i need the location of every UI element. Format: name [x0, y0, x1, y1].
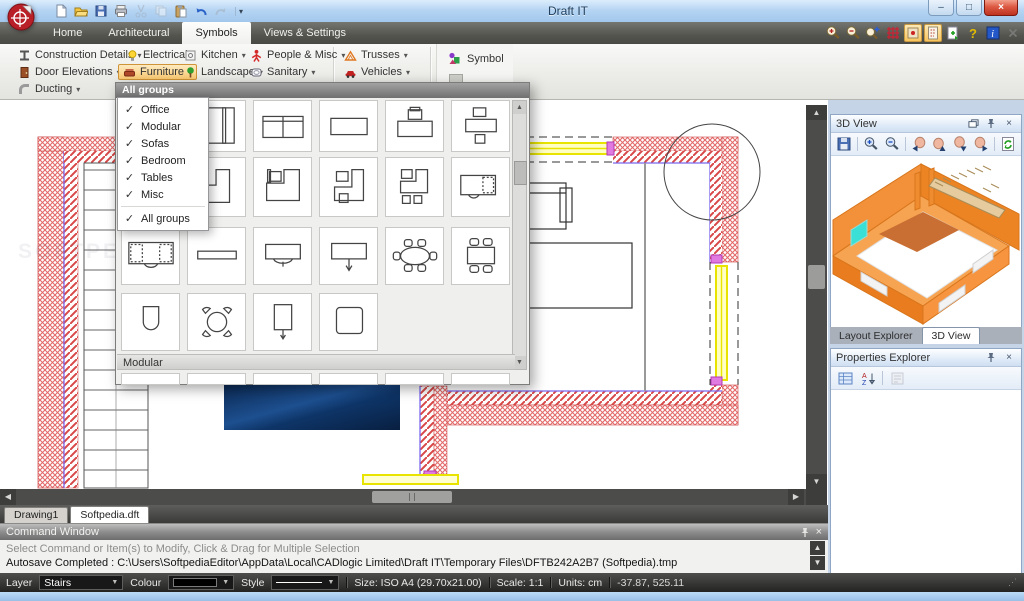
- paper-size: Size: ISO A4 (29.70x21.00): [354, 577, 481, 589]
- checkmark-icon: ✓: [123, 171, 136, 184]
- line-style-preview: [276, 582, 322, 583]
- symbol-button[interactable]: Symbol: [443, 51, 508, 67]
- status-bar: Layer Stairs ▼ Colour ▼ Style ▼ Size: IS…: [0, 573, 1024, 592]
- zoom-out-icon[interactable]: [844, 24, 862, 42]
- doc-tab-drawing1[interactable]: Drawing1: [4, 507, 68, 523]
- properties-panel: Properties Explorer × AZ: [830, 348, 1022, 575]
- menu-item-tables[interactable]: ✓Tables: [118, 169, 208, 186]
- menu-item-misc[interactable]: ✓Misc: [118, 186, 208, 203]
- symbol-desk-dashed-arc[interactable]: [121, 227, 180, 285]
- dock-tabs: Layout Explorer3D View: [830, 327, 1022, 344]
- window-controls: – □ ×: [928, 0, 1018, 16]
- ducting-icon: [18, 83, 31, 96]
- svg-text:i: i: [991, 29, 994, 40]
- command-scrollbar[interactable]: ▲ ▼: [810, 541, 825, 571]
- palette-header: All groups: [116, 83, 529, 98]
- vertical-scroll-thumb[interactable]: [808, 265, 825, 289]
- scroll-left-icon[interactable]: ◀: [0, 489, 16, 505]
- kitchen-icon: [184, 49, 197, 62]
- units: Units: cm: [558, 577, 602, 589]
- minimize-button[interactable]: –: [928, 0, 954, 16]
- symbol-partial[interactable]: [121, 373, 180, 385]
- scroll-down-icon[interactable]: ▼: [810, 556, 825, 570]
- pin-icon[interactable]: [984, 117, 998, 130]
- symbol-l-desk-chair[interactable]: [253, 157, 312, 217]
- menu-item-sofas[interactable]: ✓Sofas: [118, 135, 208, 152]
- snap-grid-icon[interactable]: [884, 24, 902, 42]
- vehicles-button[interactable]: Vehicles▾: [340, 64, 414, 80]
- chevron-down-icon: ▾: [406, 68, 410, 77]
- window-frame-bottom: [0, 592, 1024, 601]
- dock-tab-layout-explorer[interactable]: Layout Explorer: [830, 328, 922, 344]
- sort-az-icon[interactable]: AZ: [858, 369, 878, 387]
- sanitary-icon: [250, 66, 263, 79]
- refresh-3d-icon[interactable]: [999, 135, 1017, 153]
- checkmark-icon: ✓: [123, 120, 136, 133]
- property-pages-icon[interactable]: [887, 369, 907, 387]
- style-label: Style: [241, 577, 264, 589]
- layer-label: Layer: [6, 577, 32, 589]
- scroll-up-icon[interactable]: ▲: [513, 101, 526, 114]
- copy-icon[interactable]: [152, 3, 169, 20]
- door-elevations-icon: [18, 66, 31, 79]
- symbol-toilet[interactable]: [121, 293, 180, 351]
- furniture-icon: [123, 66, 136, 79]
- symbol-table-oval-seats[interactable]: [385, 227, 444, 285]
- scroll-right-icon[interactable]: ▶: [788, 489, 804, 505]
- layer-dropdown[interactable]: Stairs ▼: [39, 575, 123, 590]
- colour-swatch: [173, 578, 217, 587]
- sanitary-button[interactable]: Sanitary▾: [246, 64, 319, 80]
- cursor-coordinates: -37.87, 525.11: [617, 577, 684, 589]
- toolbar-separator: [905, 137, 906, 151]
- tab-symbols[interactable]: Symbols: [182, 22, 250, 44]
- command-prompt-line: Select Command or Item(s) to Modify, Cli…: [6, 543, 822, 555]
- colour-dropdown[interactable]: ▼: [168, 575, 234, 590]
- construction-details-icon: [18, 49, 31, 62]
- svg-text:?: ?: [969, 26, 977, 41]
- trusses-icon: [344, 49, 357, 62]
- palette-section-label: Modular: [117, 354, 515, 370]
- command-window-title: Command Window: [6, 526, 99, 538]
- horizontal-scroll-thumb[interactable]: [372, 491, 452, 503]
- close-icon[interactable]: ×: [816, 526, 822, 538]
- chevron-down-icon: ▾: [311, 68, 315, 77]
- symbol-desk-return-chair[interactable]: [319, 157, 378, 217]
- checkmark-icon: ✓: [123, 154, 136, 167]
- properties-panel-title: Properties Explorer: [836, 352, 930, 364]
- pin-icon[interactable]: [984, 351, 998, 364]
- autosave-message-line: Autosave Completed : C:\Users\SoftpediaE…: [6, 557, 822, 569]
- scroll-up-icon[interactable]: ▲: [806, 105, 827, 120]
- ribbon-tab-row: HomeArchitecturalSymbolsViews & Settings…: [0, 22, 1024, 44]
- pan-left-icon[interactable]: [910, 135, 928, 153]
- toolbar-separator: [994, 137, 995, 151]
- people-misc-button[interactable]: People & Misc▾: [246, 47, 349, 63]
- style-dropdown[interactable]: ▼: [271, 575, 339, 590]
- paste-icon[interactable]: [172, 3, 189, 20]
- door-elevations-button[interactable]: Door Elevations▾: [14, 64, 125, 80]
- draft-it-window: ▾ Draft IT – □ × HomeArchitecturalSymbol…: [0, 0, 1024, 601]
- close-ribbon-icon[interactable]: [1004, 24, 1022, 42]
- chevron-down-icon: ▾: [404, 51, 408, 60]
- ortho-toggle-icon[interactable]: [924, 24, 942, 42]
- ribbon-tabs: HomeArchitecturalSymbolsViews & Settings: [40, 22, 359, 44]
- view3d-panel-title: 3D View: [836, 118, 877, 130]
- svg-text:Z: Z: [862, 380, 867, 386]
- chevron-down-icon: ▾: [76, 85, 80, 94]
- close-button[interactable]: ×: [984, 0, 1018, 16]
- command-log[interactable]: Select Command or Item(s) to Modify, Cli…: [0, 540, 828, 573]
- info-icon[interactable]: i: [984, 24, 1002, 42]
- app-logo-icon[interactable]: [6, 2, 36, 32]
- symbol-partial[interactable]: [319, 373, 378, 385]
- snap-toggle-icon[interactable]: [904, 24, 922, 42]
- zoom-extents-icon[interactable]: [864, 24, 882, 42]
- trusses-button[interactable]: Trusses▾: [340, 47, 412, 63]
- chevron-down-icon: ▼: [327, 579, 334, 586]
- new-icon[interactable]: [52, 3, 69, 20]
- checkmark-icon: ✓: [123, 212, 136, 225]
- symbol-partial[interactable]: [253, 373, 312, 385]
- zoom-in-3d-icon[interactable]: [862, 135, 880, 153]
- scroll-up-icon[interactable]: ▲: [810, 541, 825, 555]
- resize-grip[interactable]: ⋰: [1008, 577, 1018, 588]
- symbol-partial[interactable]: [451, 373, 510, 385]
- symbol-table-arc-chair[interactable]: [253, 227, 312, 285]
- symbol-table-rect[interactable]: [319, 100, 378, 152]
- symbol-desk-chair[interactable]: [385, 100, 444, 152]
- group-filter-menu: ✓Office✓Modular✓Sofas✓Bedroom✓Tables✓Mis…: [117, 97, 209, 231]
- toolbar-separator: [882, 371, 883, 385]
- cut-icon[interactable]: [132, 3, 149, 20]
- dock-tab-3d-view[interactable]: 3D View: [922, 327, 981, 344]
- properties-toolbar: AZ: [831, 367, 1021, 390]
- symbol-table-rect-seats[interactable]: [451, 227, 510, 285]
- symbol-desk-chair-stool[interactable]: [451, 100, 510, 152]
- zoom-out-3d-icon[interactable]: [883, 135, 901, 153]
- pin-icon[interactable]: [800, 527, 810, 538]
- symbol-partial[interactable]: [385, 373, 444, 385]
- close-icon[interactable]: ×: [1002, 351, 1016, 364]
- doc-tab-softpedia-dft[interactable]: Softpedia.dft: [70, 506, 149, 523]
- landscape-icon: [184, 66, 197, 79]
- scrollbar-corner: [806, 489, 827, 505]
- view3d-viewport[interactable]: [831, 156, 1021, 330]
- document-tabs: Drawing1Softpedia.dft: [0, 505, 828, 523]
- command-window: Command Window × Select Command or Item(…: [0, 523, 828, 573]
- save-icon[interactable]: [92, 3, 109, 20]
- kitchen-button[interactable]: Kitchen▾: [180, 47, 250, 63]
- scale: Scale: 1:1: [497, 577, 544, 589]
- symbol-icon: [447, 51, 463, 67]
- pan-down-icon[interactable]: [951, 135, 969, 153]
- symbol-table-square[interactable]: [319, 293, 378, 351]
- palette-scroll-thumb[interactable]: [514, 161, 527, 185]
- checkmark-icon: ✓: [123, 188, 136, 201]
- view3d-toolbar: [831, 133, 1021, 156]
- checkmark-icon: ✓: [123, 137, 136, 150]
- view3d-panel: 3D View ×: [830, 114, 1022, 331]
- menu-item-modular[interactable]: ✓Modular: [118, 118, 208, 135]
- palette-scrollbar[interactable]: ▲ ▼: [512, 100, 527, 370]
- view-toolbar: ?i: [824, 24, 1022, 42]
- toolbar-separator: [857, 137, 858, 151]
- menu-item-office[interactable]: ✓Office: [118, 101, 208, 118]
- canvas-vertical-scrollbar[interactable]: ▲ ▼: [806, 105, 827, 489]
- vehicles-icon: [344, 66, 357, 79]
- svg-text:A: A: [862, 373, 867, 380]
- redo-icon[interactable]: [212, 3, 229, 20]
- people-misc-icon: [250, 49, 263, 62]
- zoom-in-icon[interactable]: [824, 24, 842, 42]
- print-icon[interactable]: [112, 3, 129, 20]
- chevron-down-icon: ▼: [111, 579, 118, 586]
- colour-label: Colour: [130, 577, 161, 589]
- close-icon[interactable]: ×: [1002, 117, 1016, 130]
- checkmark-icon: ✓: [123, 103, 136, 116]
- help-icon[interactable]: ?: [964, 24, 982, 42]
- pan-right-icon[interactable]: [972, 135, 990, 153]
- symbol-table-round-seats[interactable]: [187, 293, 246, 351]
- window-title: Draft IT: [548, 4, 588, 18]
- chevron-down-icon: ▼: [222, 579, 229, 586]
- scroll-down-icon[interactable]: ▼: [806, 474, 827, 489]
- tab-home[interactable]: Home: [40, 22, 95, 44]
- symbol-table-arrow[interactable]: [319, 227, 378, 285]
- tab-architectural[interactable]: Architectural: [95, 22, 182, 44]
- canvas-horizontal-scrollbar[interactable]: ◀ ▶: [0, 489, 806, 505]
- qat-customize-icon[interactable]: ▾: [235, 7, 246, 16]
- ducting-button[interactable]: Ducting▾: [14, 81, 84, 97]
- categorized-icon[interactable]: [835, 369, 855, 387]
- undo-icon[interactable]: [192, 3, 209, 20]
- maximize-button[interactable]: □: [956, 0, 982, 16]
- menu-separator: [121, 206, 205, 207]
- properties-list[interactable]: [831, 390, 1021, 574]
- symbol-desk-dashed-chair[interactable]: [451, 157, 510, 217]
- symbol-shelf[interactable]: [187, 227, 246, 285]
- symbol-partial[interactable]: [187, 373, 246, 385]
- quick-access-toolbar: ▾: [52, 2, 246, 20]
- symbol-sofa-two-seat[interactable]: [253, 100, 312, 152]
- open-icon[interactable]: [72, 3, 89, 20]
- menu-item-bedroom[interactable]: ✓Bedroom: [118, 152, 208, 169]
- symbol-cabinet-arrow[interactable]: [253, 293, 312, 351]
- menu-item-all-groups[interactable]: ✓All groups: [118, 210, 208, 227]
- pan-up-icon[interactable]: [930, 135, 948, 153]
- restore-icon[interactable]: [966, 117, 980, 130]
- right-dock: 3D View ×: [828, 100, 1024, 573]
- export-view-icon[interactable]: [944, 24, 962, 42]
- symbol-desk-chair-stools[interactable]: [385, 157, 444, 217]
- save-view-icon[interactable]: [835, 135, 853, 153]
- electrical-icon: [126, 49, 139, 62]
- tab-views-settings[interactable]: Views & Settings: [251, 22, 359, 44]
